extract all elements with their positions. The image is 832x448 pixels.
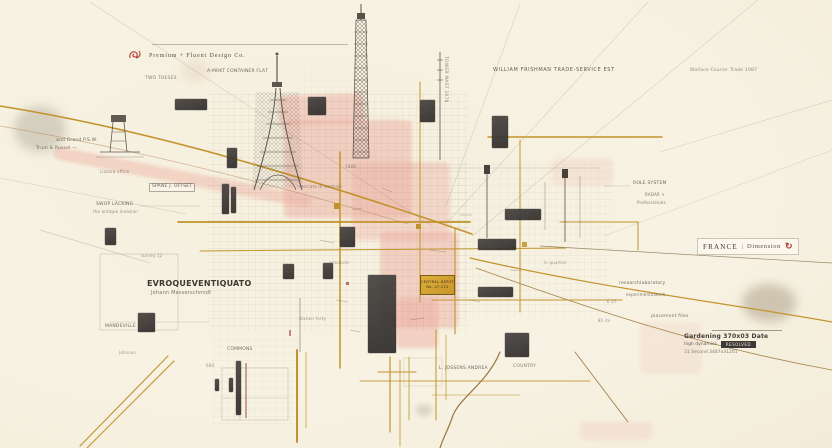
- info-block: Gardening 370x03 Date high dynamics RESO…: [684, 330, 796, 355]
- legend-rule: [152, 44, 348, 45]
- lattice-mast-sketch: [353, 4, 369, 158]
- derrick-sketch: [96, 115, 144, 157]
- rose-compass-icon: [128, 46, 143, 65]
- map-linework: [0, 0, 832, 448]
- legend-text: Premium + Fluent Design Co.: [149, 53, 246, 59]
- info-rule: [712, 330, 782, 331]
- region-name: FRANCE: [703, 243, 738, 251]
- plaque-line-1: CENTRAL DEPOT: [421, 281, 454, 285]
- map-canvas: A-MRKT CONTAINER FLATTWO THESESand Grand…: [0, 0, 832, 448]
- legend: Premium + Fluent Design Co.: [128, 46, 246, 65]
- region-separator: |: [742, 244, 743, 250]
- info-badge: RESOLVED: [721, 341, 756, 348]
- gold-plaque: CENTRAL DEPOT No. 47-212: [420, 275, 455, 295]
- plaque-line-2: No. 47-212: [426, 286, 448, 290]
- info-subtitle: high dynamics: [684, 342, 717, 347]
- info-footer: 31 Second 3487x31201: [684, 350, 796, 355]
- eiffel-tower-sketch: [252, 53, 303, 191]
- region-label: Dimension: [747, 243, 781, 250]
- info-title: Gardening 370x03 Date: [684, 333, 796, 340]
- refresh-arrow-icon: ↻: [785, 242, 793, 251]
- region-tag: FRANCE | Dimension ↻: [697, 238, 799, 255]
